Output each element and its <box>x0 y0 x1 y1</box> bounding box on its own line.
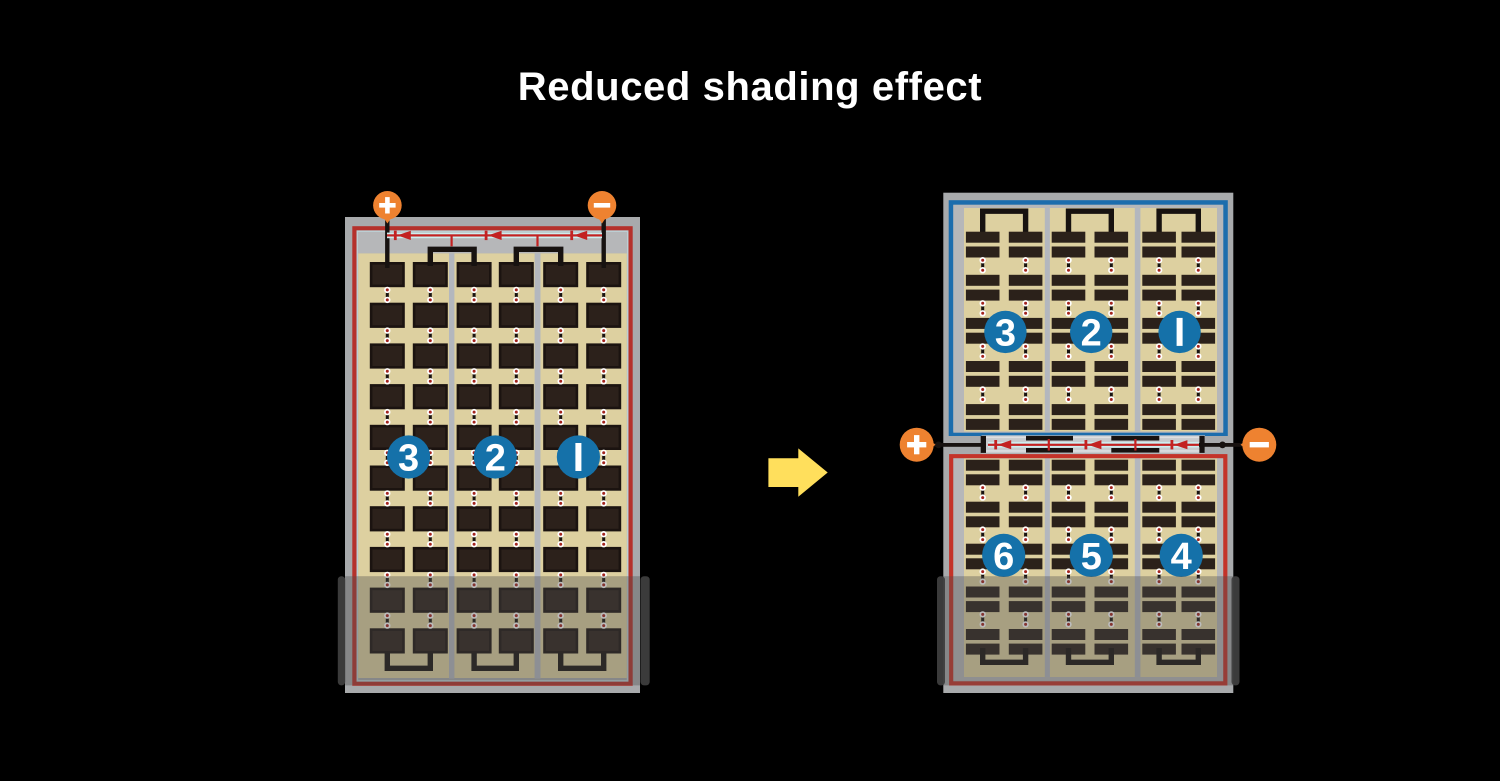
svg-text:2: 2 <box>1081 312 1102 354</box>
svg-text:2: 2 <box>485 438 506 480</box>
svg-text:3: 3 <box>398 438 419 480</box>
svg-text:3: 3 <box>995 312 1016 354</box>
svg-text:Reduced shading effect: Reduced shading effect <box>518 65 982 109</box>
svg-text:4: 4 <box>1171 536 1192 578</box>
svg-text:6: 6 <box>993 536 1014 578</box>
svg-text:5: 5 <box>1081 536 1102 578</box>
